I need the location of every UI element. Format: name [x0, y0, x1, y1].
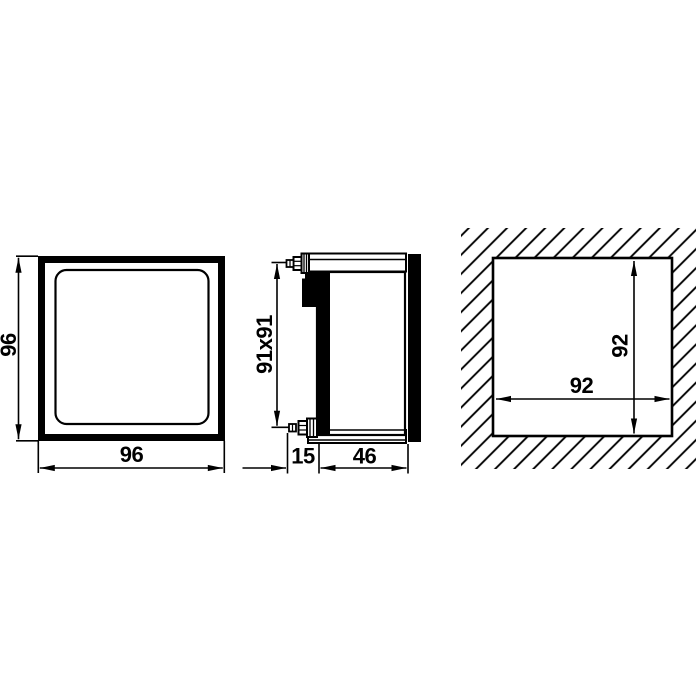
- case-rear-wall: [317, 272, 330, 435]
- panel-cutout-view: 92 92: [461, 228, 696, 469]
- clamp-depth-label: 15: [291, 444, 315, 469]
- cutout-height-label: 92: [608, 334, 633, 358]
- panel-meter-dimension-drawing: 96 96: [0, 0, 700, 700]
- hex-nut: [299, 421, 308, 435]
- cutout-hole: [493, 258, 672, 436]
- technical-drawing-page: 96 96: [0, 0, 700, 700]
- case-section-label: 91x91: [252, 315, 277, 374]
- bottom-clamp-screw: [289, 419, 317, 438]
- bezel-side-profile: [408, 254, 421, 442]
- case-body: [317, 272, 405, 435]
- front-width-label: 96: [120, 442, 144, 467]
- top-clamp-screw: [287, 254, 310, 274]
- clamp-nut-housing: [302, 254, 310, 274]
- front-view: 96 96: [0, 256, 225, 473]
- body-depth-label: 46: [353, 444, 377, 469]
- clamp-nut-housing: [307, 419, 317, 438]
- cutout-width-label: 92: [570, 373, 594, 398]
- front-height-label: 96: [0, 333, 21, 357]
- case-section-dimension: 91x91: [252, 263, 289, 428]
- terminal-block: [302, 279, 317, 308]
- top-mounting-bracket: [308, 254, 406, 272]
- front-height-dimension: 96: [0, 256, 38, 441]
- front-display-window: [56, 270, 209, 424]
- side-view: 91x91 15 46: [243, 254, 422, 474]
- hex-nut: [294, 257, 302, 270]
- front-width-dimension: 96: [38, 441, 224, 473]
